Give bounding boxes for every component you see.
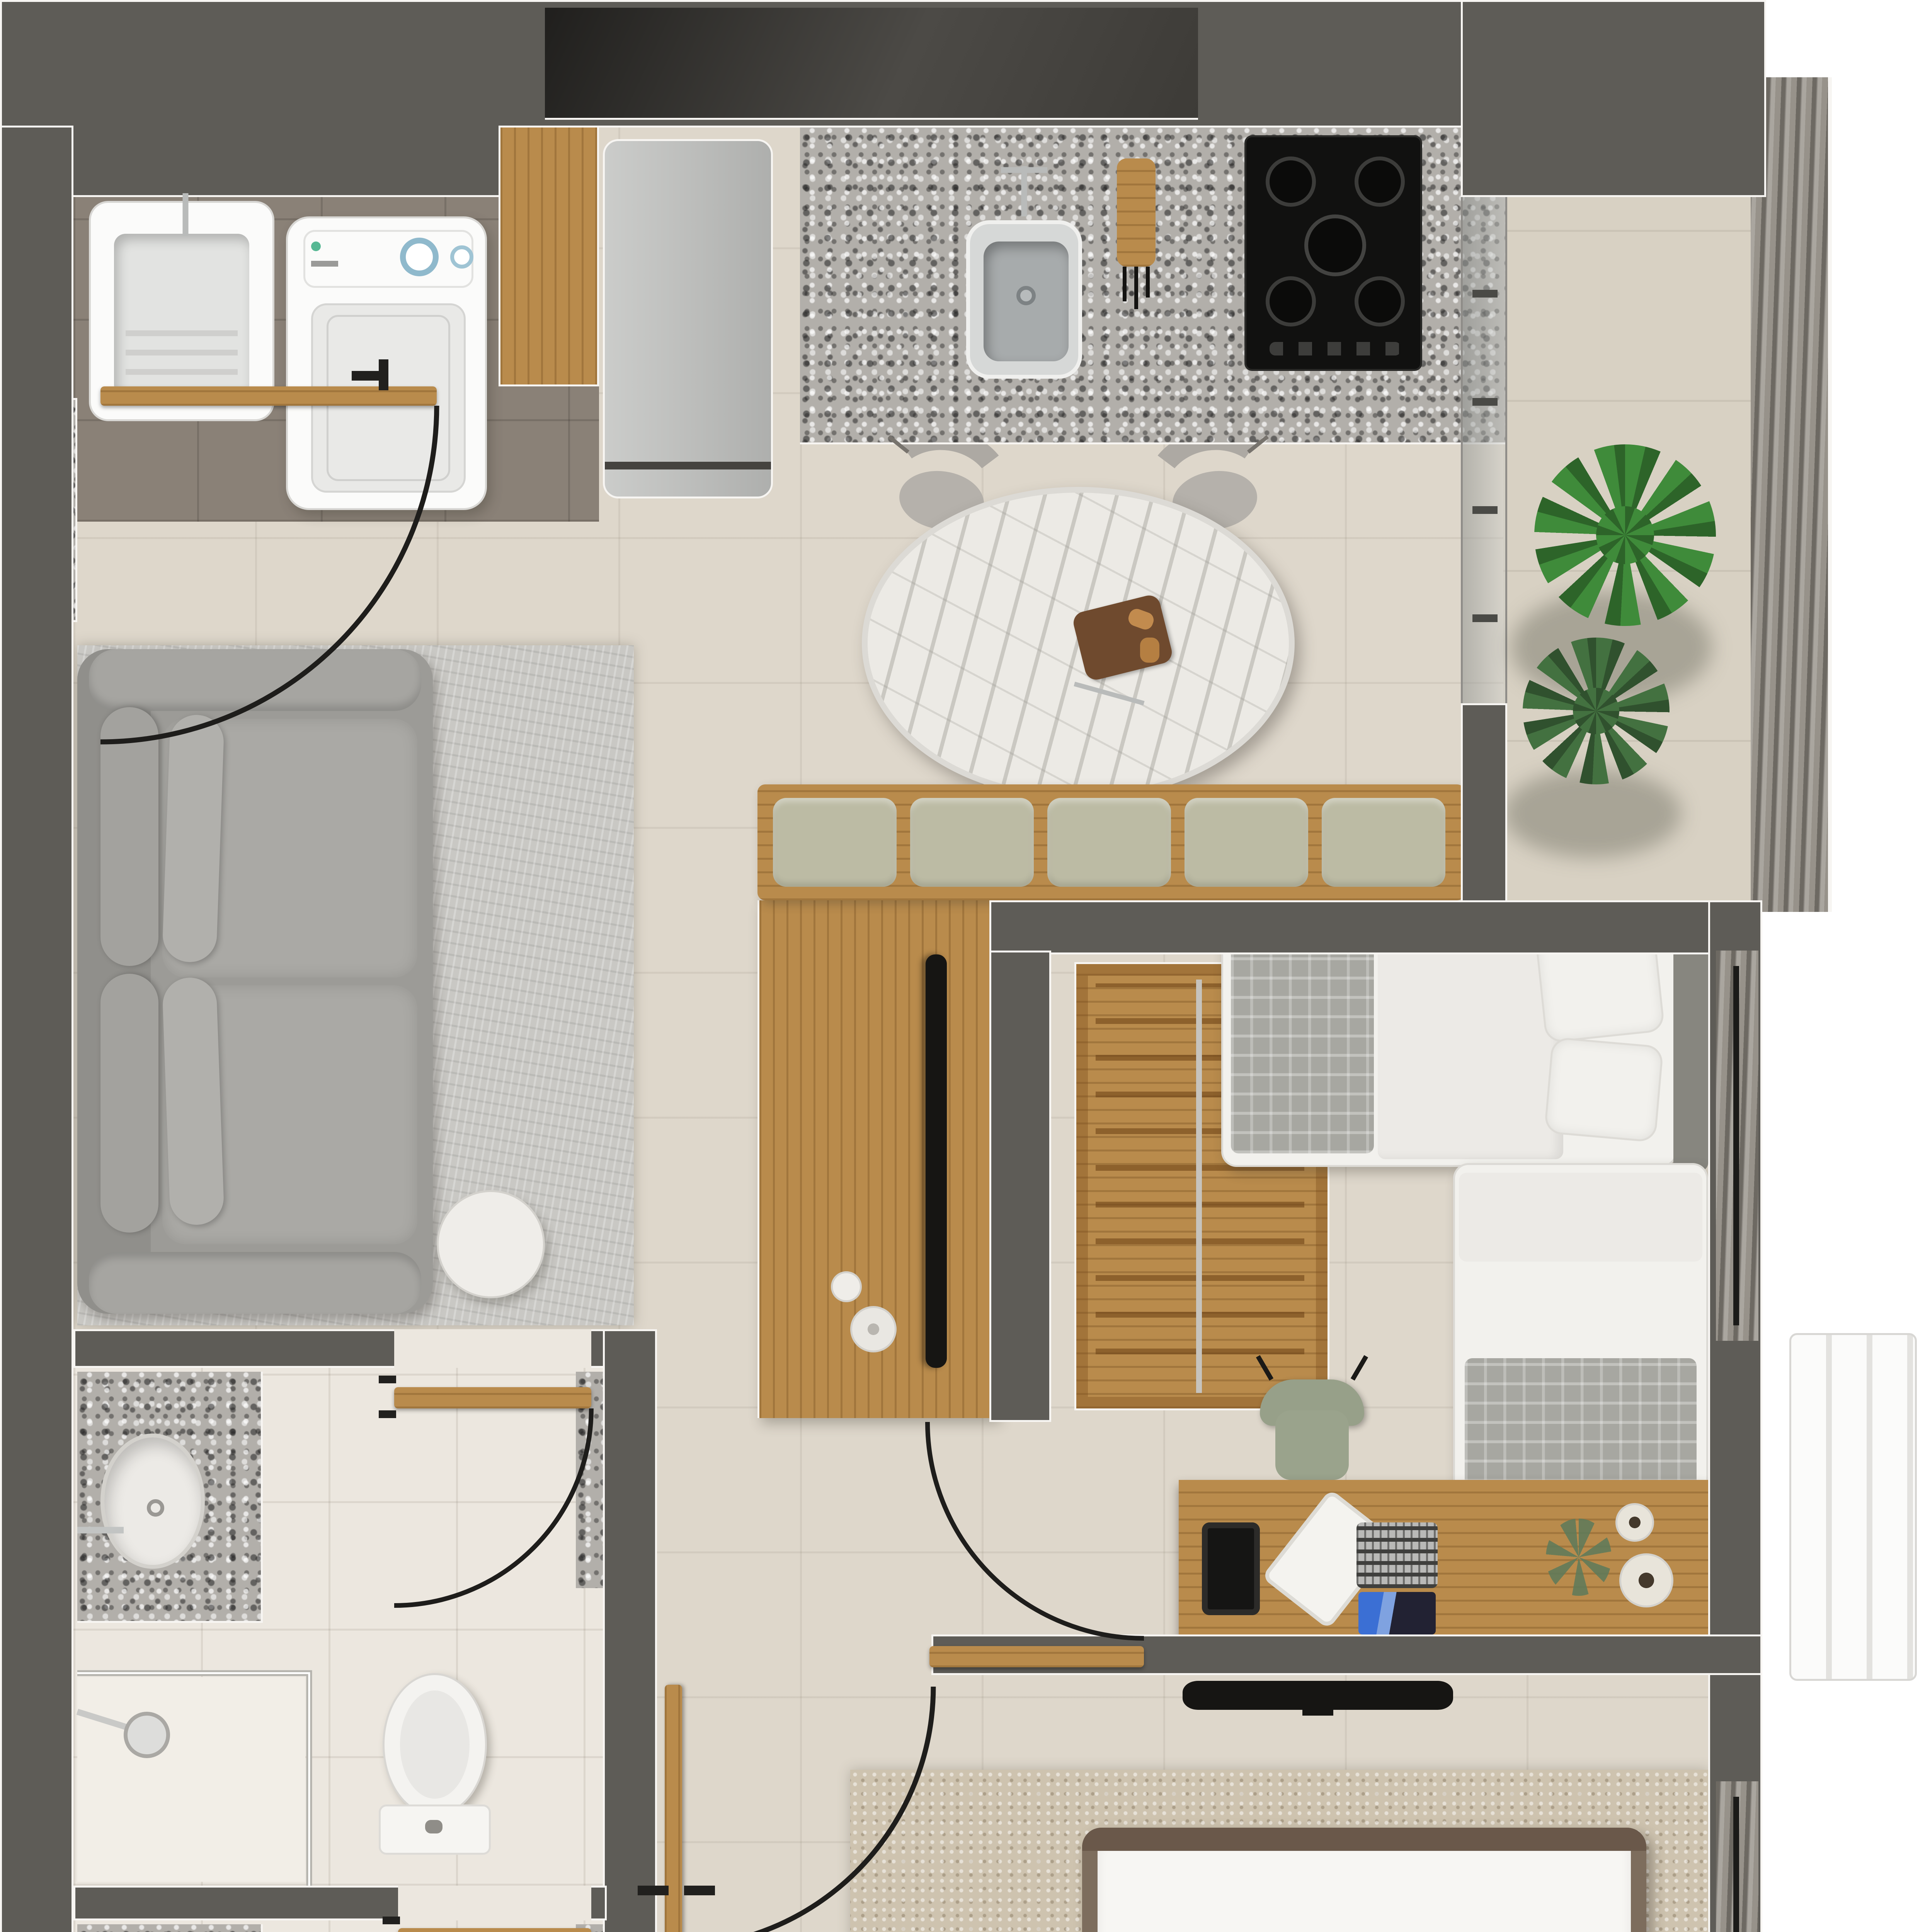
bath1-door-leaf — [394, 1387, 591, 1408]
kitchen-upper-cabinets — [545, 8, 1198, 120]
service-cabinet — [499, 124, 599, 386]
master-door-handle — [684, 1886, 715, 1895]
tank-ridge — [126, 350, 238, 355]
bath1-door-hinge — [379, 1376, 396, 1383]
bath1-door-hinge — [379, 1410, 396, 1418]
potted-plant — [1534, 444, 1716, 626]
washer-dial — [450, 245, 473, 269]
bedroom1-door-leaf — [929, 1646, 1144, 1667]
burner-center — [1304, 214, 1366, 276]
bed-pillow — [1544, 1037, 1664, 1143]
plaid-blanket — [1231, 922, 1374, 1153]
sofa-arm-top — [89, 649, 421, 711]
wall-top-right — [1461, 0, 1766, 197]
bench-cushion — [1322, 798, 1445, 887]
window-curtain-master — [1716, 1781, 1758, 1932]
fridge-door-gap — [605, 462, 771, 469]
burner — [1266, 276, 1316, 327]
cooktop-knobs — [1270, 342, 1401, 355]
tablet — [1202, 1522, 1260, 1615]
doorway-bath2 — [398, 1886, 591, 1920]
laptop-screen — [1358, 1592, 1436, 1634]
sofa-back-pillow — [100, 974, 158, 1233]
sofa-arm-bottom — [89, 1252, 421, 1314]
master-bed-frame — [1082, 1828, 1646, 1932]
floor-plan — [0, 0, 1930, 1932]
burner — [1355, 276, 1405, 327]
shower1-tile — [77, 1677, 305, 1882]
wall-bath-right — [603, 1329, 657, 1932]
side-table — [437, 1190, 545, 1298]
utensil-holder — [1117, 158, 1156, 267]
sliding-glass-door — [1461, 197, 1507, 703]
desk-plant — [1546, 1519, 1612, 1596]
washer-indicator — [311, 241, 321, 251]
chair-seat — [1275, 1410, 1349, 1480]
door-handle — [1472, 290, 1498, 298]
screenshot-root — [0, 0, 1930, 1932]
ceramic-plate — [1615, 1503, 1654, 1542]
door-handle — [1472, 398, 1498, 406]
tv-flat — [926, 954, 947, 1368]
cooktop — [1244, 135, 1422, 371]
bench-cushion — [910, 798, 1034, 887]
sofa — [77, 649, 433, 1314]
wall-balcony-lower — [1461, 703, 1507, 908]
sheet-fold — [1459, 1173, 1702, 1262]
doorway-bath1 — [394, 1329, 591, 1368]
toilet-seat — [400, 1690, 470, 1799]
ceramic-plate — [1619, 1553, 1673, 1607]
bread-item — [1140, 638, 1159, 663]
entry-door-handle — [352, 371, 383, 381]
burner — [1355, 156, 1405, 207]
curtain-rail — [1733, 1797, 1739, 1932]
sink-drain — [1016, 286, 1036, 305]
footboard — [1082, 1828, 1646, 1851]
bench-cushion — [773, 798, 897, 887]
decor-vase — [831, 1271, 862, 1302]
ac-condenser-unit — [1789, 1333, 1917, 1681]
decor-vase — [850, 1306, 897, 1352]
refrigerator — [603, 139, 773, 498]
sink-bath1 — [100, 1434, 205, 1569]
wall-left — [0, 0, 73, 1932]
wall-tv — [1183, 1681, 1453, 1710]
wardrobe-rail — [1196, 980, 1202, 1393]
curtain-rail — [1733, 966, 1739, 1325]
bath2-door-hinge — [383, 1917, 400, 1924]
tank-ridge — [126, 330, 238, 336]
kitchen-sink — [966, 220, 1082, 379]
vanity-bath2 — [77, 1924, 263, 1932]
window-curtain-bedroom1 — [1716, 951, 1758, 1341]
washer-panel — [303, 230, 473, 288]
sheet-top — [1098, 1851, 1631, 1932]
tv-stand — [1302, 1708, 1333, 1716]
sofa-back-pillow — [162, 977, 225, 1226]
toilet-bath1 — [379, 1673, 491, 1862]
laptop-keyboard — [1356, 1522, 1438, 1588]
bench-cushion — [1047, 798, 1171, 887]
wall-service-top — [73, 124, 499, 197]
tank-ridge — [126, 369, 238, 375]
balcony-privacy-screen — [1751, 77, 1832, 912]
desk — [1179, 1480, 1708, 1642]
bath2-door-leaf — [398, 1928, 591, 1932]
wall-bedroom1-left — [989, 951, 1051, 1422]
bench-cushion — [1185, 798, 1308, 887]
burner — [1266, 156, 1316, 207]
flush-button — [425, 1820, 443, 1833]
sink-drain — [147, 1499, 164, 1517]
master-door-handle — [638, 1886, 669, 1895]
wall-bedroom1-top — [989, 900, 1762, 954]
door-handle — [1472, 506, 1498, 514]
washer-indicator — [311, 261, 338, 266]
entry-door-handle — [379, 359, 388, 390]
potted-plant — [1523, 638, 1670, 784]
door-handle — [1472, 614, 1498, 622]
washer-dial — [400, 238, 439, 276]
desk-chair — [1256, 1379, 1368, 1484]
sofa-back-pillow — [100, 707, 158, 966]
sofa-back-pillow — [162, 714, 225, 963]
